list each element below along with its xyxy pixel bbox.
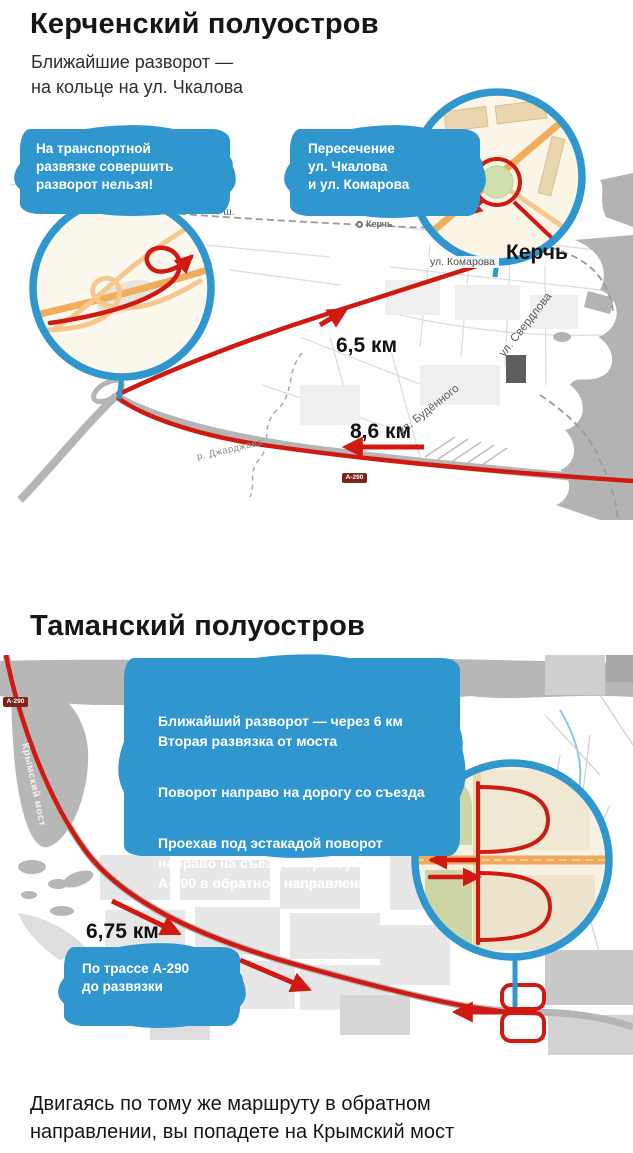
info-para-3: Проехав под эстакадой поворот направо на… <box>158 834 460 894</box>
callout-taman-info: Ближайший разворот — через 6 км Вторая р… <box>124 658 460 856</box>
station-label: Керчь <box>356 219 393 229</box>
callout-no-uturn: На транспортной развязке совершить разво… <box>20 129 230 214</box>
distance-taman: 6,75 км <box>86 920 159 944</box>
road-badge-a290-taman: А-290 <box>3 697 28 707</box>
road-badge-a290: А-290 <box>342 473 367 483</box>
distance-forward: 6,5 км <box>336 334 397 358</box>
info-para-1: Ближайший разворот — через 6 км Вторая р… <box>158 712 460 752</box>
callout-route-a290: По трассе А-290 до развязки <box>64 947 240 1026</box>
info-para-2: Поворот направо на дорогу со съезда <box>158 783 460 803</box>
taman-title: Таманский полуостров <box>30 610 365 643</box>
kerch-title: Керченский полуостров <box>30 8 379 41</box>
city-label-kerch: Керчь <box>506 241 568 265</box>
street-label-komarova: ул. Комарова <box>426 256 499 268</box>
boundary-dashed <box>250 353 302 497</box>
infographic: Керченский полуостров Ближайшие разворот… <box>0 0 633 1153</box>
dark-block <box>506 355 526 383</box>
station-icon <box>356 221 363 228</box>
footer-note: Двигаясь по тому же маршруту в обратном … <box>30 1090 610 1146</box>
callout-intersection: Пересечение ул. Чкалова и ул. Комарова <box>290 129 480 216</box>
